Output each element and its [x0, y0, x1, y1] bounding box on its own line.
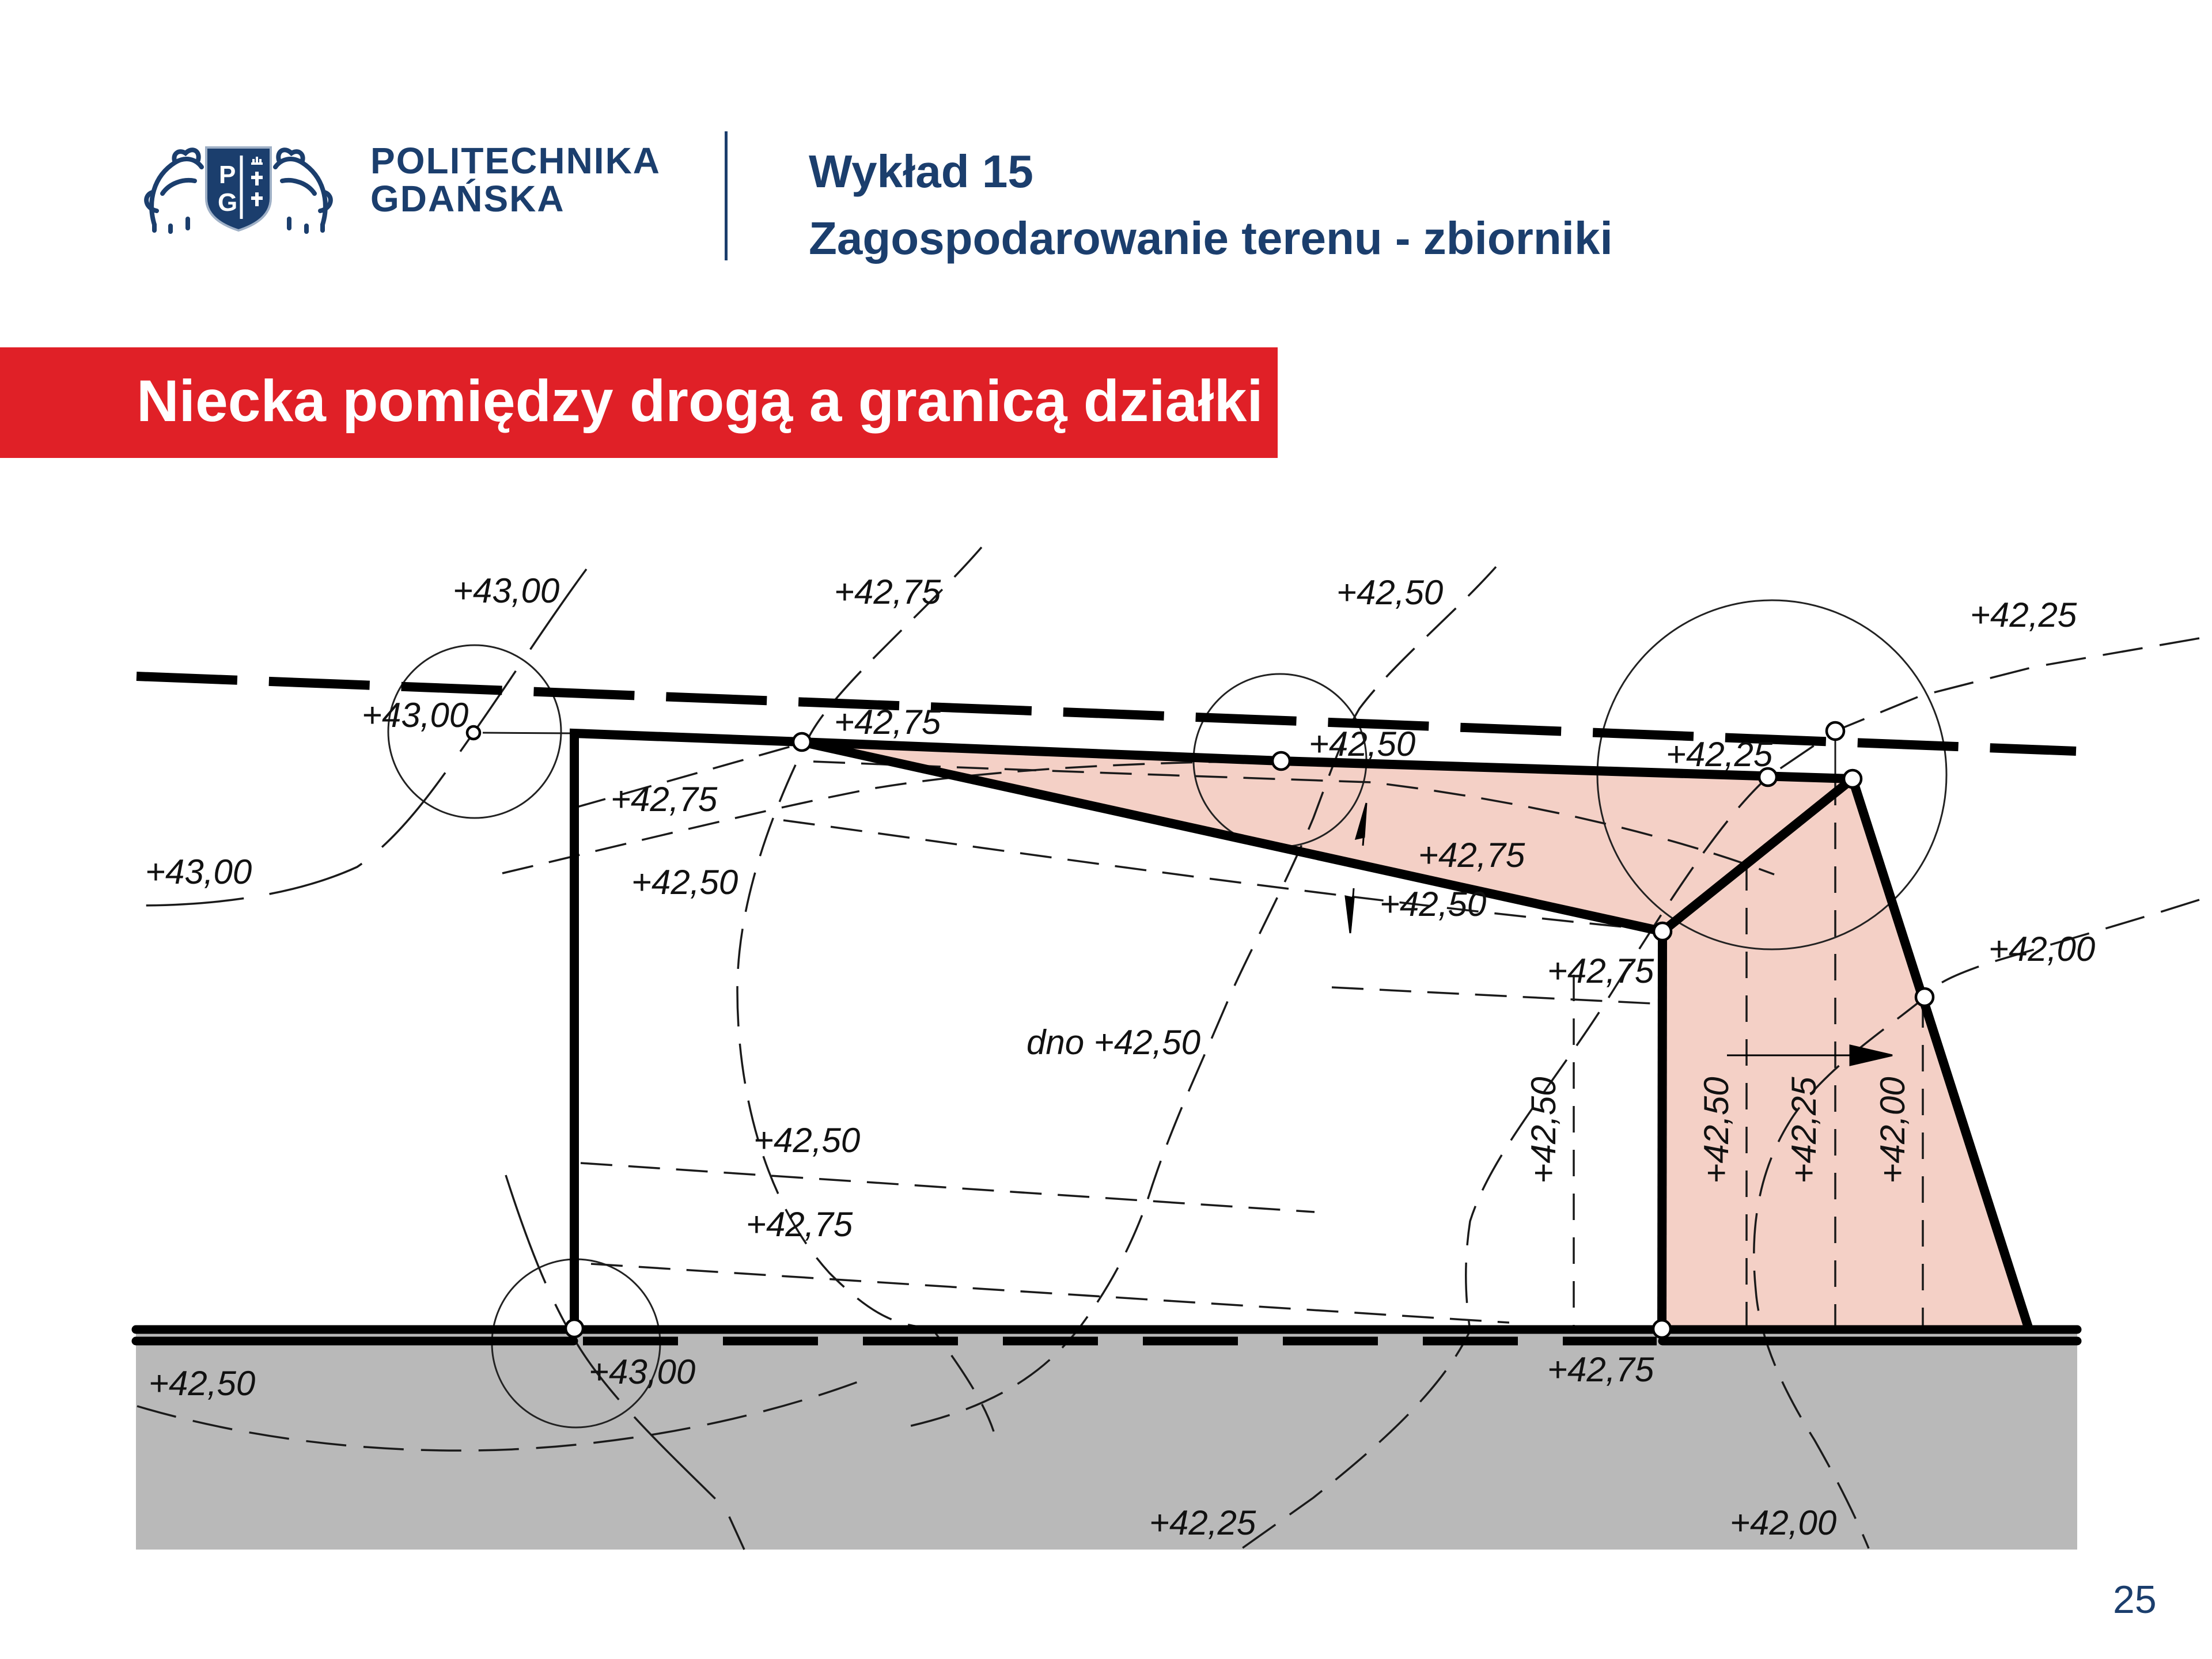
contour-label: +42,50: [1336, 573, 1443, 612]
contour-label: +42,25: [1149, 1503, 1256, 1542]
contour-label: +42,25: [1666, 735, 1773, 774]
elevation-point: [1916, 988, 1933, 1006]
contour-label: +42,50: [753, 1121, 860, 1160]
contour-label: +42,00: [1730, 1503, 1836, 1542]
contour-label: +42,50: [1309, 725, 1415, 763]
contour-label: +42,75: [1418, 836, 1525, 874]
elevation-point: [1272, 752, 1290, 770]
contour-label: +42,75: [1547, 952, 1654, 990]
contour-label: +42,25: [1970, 596, 2077, 634]
floor-contour-42-50: [581, 1163, 1315, 1212]
elevation-point: [467, 726, 480, 739]
floor-contour-42-75: [591, 1264, 1509, 1323]
slope-fill: [802, 742, 2028, 1329]
arrow-down-head-icon: [1346, 896, 1354, 933]
contour-label: +42,50: [1524, 1077, 1563, 1183]
elevation-point: [1844, 770, 1861, 787]
basin-ridge-line: [1662, 931, 1662, 1329]
page-number: 25: [2113, 1577, 2157, 1622]
contour-42-50: [899, 567, 1496, 1429]
contour-label: +43,00: [589, 1353, 695, 1391]
contour-label: +42,75: [611, 780, 718, 819]
elevation-point: [793, 733, 810, 751]
contour-label: +42,00: [1873, 1077, 1912, 1183]
contour-label: +42,75: [834, 703, 941, 741]
slide: P G POLITECHNIKA GDAŃSKA Wykład 15 Zagos…: [0, 0, 2212, 1659]
contour-label: dno +42,50: [1027, 1023, 1200, 1062]
contour-label: +42,75: [1547, 1350, 1654, 1389]
leader-43-00: [483, 733, 573, 733]
contour-label: +42,00: [1988, 930, 2095, 968]
elevation-point: [1654, 923, 1671, 940]
contour-label: +42,50: [149, 1364, 255, 1403]
contour-label: +42,50: [1380, 885, 1486, 923]
contour-label: +42,50: [631, 863, 738, 902]
contour-label: +43,00: [453, 571, 559, 610]
contour-42-75: [737, 547, 994, 1431]
site-plan-drawing: +43,00+42,75+42,50+42,25+43,00+42,75+42,…: [0, 0, 2212, 1659]
contour-label: +42,50: [1697, 1077, 1736, 1183]
contour-label: +43,00: [362, 696, 468, 734]
contour-label: +43,00: [145, 853, 252, 891]
contour-label: +42,75: [834, 573, 941, 611]
contour-label: +42,75: [746, 1205, 853, 1244]
elevation-point: [1653, 1320, 1671, 1338]
elevation-point: [566, 1320, 583, 1337]
elevation-point: [1827, 722, 1844, 740]
contour-label: +42,25: [1785, 1077, 1823, 1184]
